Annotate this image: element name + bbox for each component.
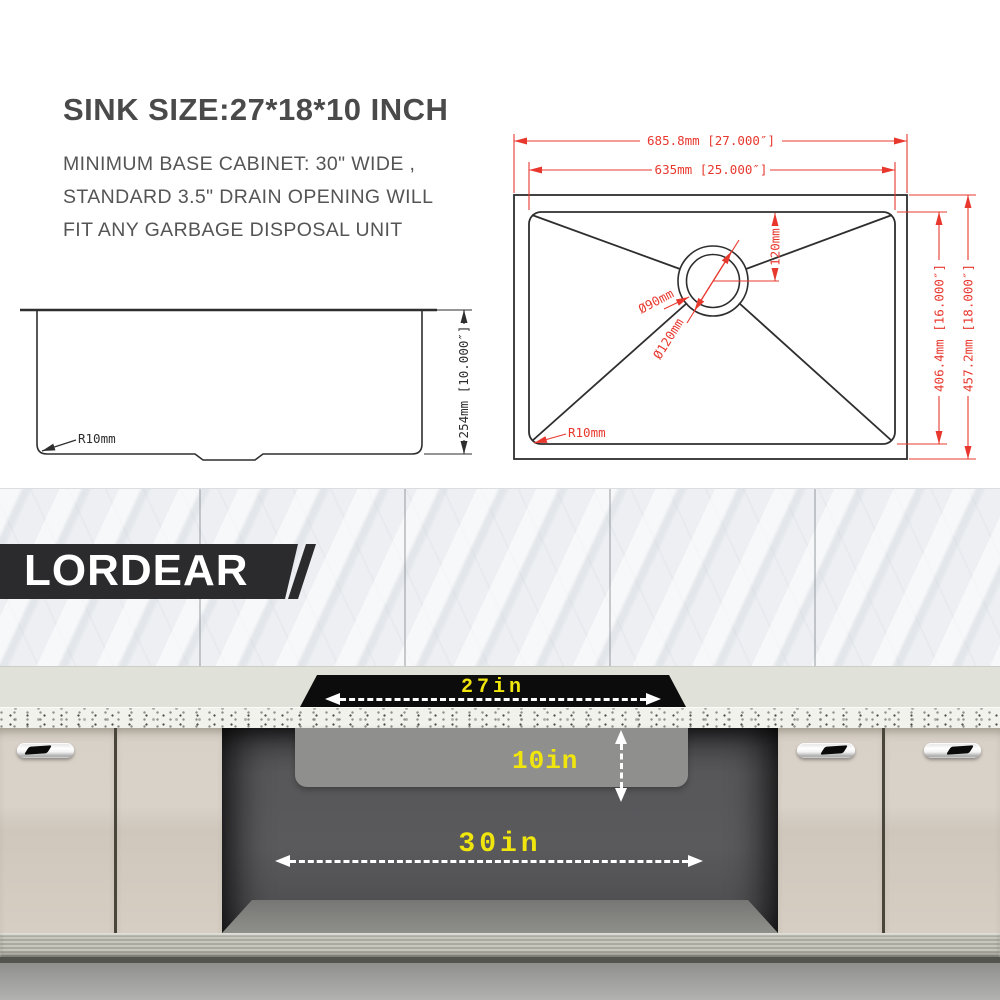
- cabinet-floor: [222, 900, 778, 933]
- sink-depth-label: 10in: [512, 746, 578, 776]
- handle-reflection: [946, 745, 974, 755]
- basin-depth-dim: 406.4mm [16.000″]: [932, 264, 947, 392]
- sink-underside: [295, 728, 688, 787]
- cabinet-door: [0, 728, 114, 933]
- handle-reflection: [820, 745, 848, 755]
- top-view-drawing: [514, 195, 907, 459]
- cabinet-width-arrow: [290, 860, 688, 863]
- door-handle: [797, 743, 855, 758]
- side-height-dim: 254mm [10.000″]: [456, 326, 471, 439]
- door-handle: [924, 743, 981, 758]
- sink-width-label: 27in: [300, 676, 686, 699]
- brand-logo: LORDEAR: [24, 544, 249, 598]
- tile-grout-line: [814, 489, 816, 667]
- cabinet-door: [117, 728, 222, 933]
- outer-depth-dim: 457.2mm [18.000″]: [961, 264, 976, 392]
- arrow-left-head: [325, 693, 340, 705]
- brand-banner: LORDEAR: [0, 544, 330, 599]
- drain-inner-dim: Ø90mm: [636, 286, 676, 317]
- sink-depth-arrow: [620, 744, 623, 788]
- cabinet-door: [778, 728, 882, 933]
- arrow-down-head: [615, 788, 627, 802]
- drain-offset-dim: 120mm: [768, 228, 783, 266]
- base-cabinet: 10in 30in: [0, 728, 1000, 1000]
- tile-grout-line: [609, 489, 611, 667]
- kickplate: [0, 933, 1000, 957]
- arrow-up-head: [615, 730, 627, 744]
- basin-width-dim: 635mm [25.000″]: [655, 162, 768, 177]
- cabinet-opening: 10in 30in: [222, 728, 778, 933]
- tile-grout-line: [404, 489, 406, 667]
- sink-outer-rect: [514, 195, 907, 459]
- arrow-right-head: [646, 693, 661, 705]
- cabinet-door: [885, 728, 1000, 933]
- sink-width-arrow: [340, 698, 646, 701]
- drain-outer-dim: Ø120mm: [650, 315, 687, 361]
- arrow-right-head: [688, 855, 703, 867]
- technical-drawings: 254mm [10.000″] R10mm: [0, 0, 1000, 488]
- handle-reflection: [24, 745, 52, 755]
- basin-corner-radius: R10mm: [568, 425, 606, 440]
- sink-front-rim: 27in: [300, 675, 686, 707]
- outer-width-dim: 685.8mm [27.000″]: [647, 133, 775, 148]
- side-corner-radius: R10mm: [78, 431, 116, 446]
- arrow-left-head: [275, 855, 290, 867]
- tile-backsplash: LORDEAR: [0, 488, 1000, 667]
- sink-spec-poster: SINK SIZE:27*18*10 INCH MINIMUM BASE CAB…: [0, 0, 1000, 1000]
- door-handle: [17, 743, 74, 758]
- floor: [0, 963, 1000, 1000]
